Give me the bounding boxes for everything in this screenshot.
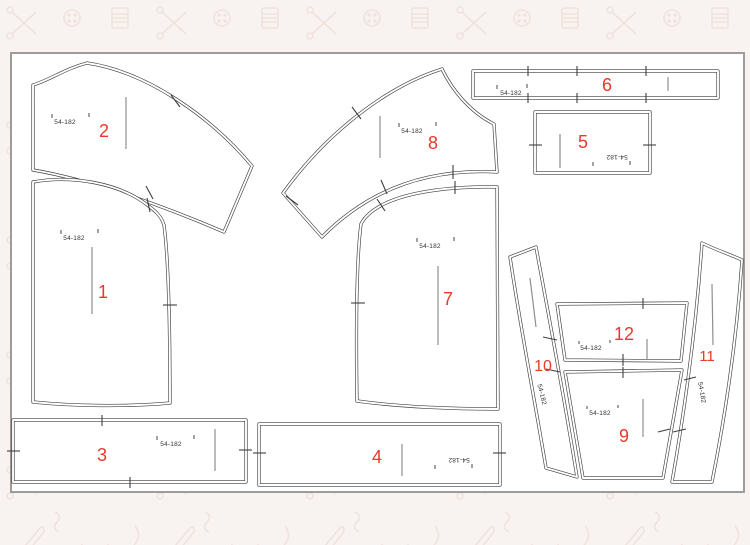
- piece-2-number: 2: [99, 121, 109, 141]
- size-label: 54-182: [448, 456, 470, 463]
- size-label: 54-182: [63, 235, 85, 242]
- size-label: 54-182: [160, 441, 182, 448]
- size-label: 54-182: [580, 345, 602, 352]
- piece-12-number: 12: [614, 324, 634, 344]
- pattern-piece-4: 54-182 4: [253, 424, 506, 485]
- pattern-layout-page: 54-182 2 54-182 1 54: [0, 0, 750, 545]
- piece-3-number: 3: [97, 445, 107, 465]
- size-label: 54-182: [606, 153, 628, 160]
- piece-11-number: 11: [699, 348, 715, 365]
- piece-4-number: 4: [372, 447, 382, 467]
- piece-6-number: 6: [602, 75, 612, 95]
- size-label: 54-182: [500, 90, 522, 97]
- pattern-piece-7: 54-182 7: [351, 181, 498, 409]
- piece-7-number: 7: [443, 289, 453, 309]
- size-label: 54-182: [589, 410, 611, 417]
- pattern-piece-6: 54-182 6: [473, 66, 718, 103]
- pattern-piece-3: 54-182 3: [7, 415, 252, 488]
- piece-8-number: 8: [428, 133, 438, 153]
- piece-1-number: 1: [98, 282, 108, 302]
- size-label: 54-182: [419, 243, 441, 250]
- pattern-layout-canvas: 54-182 2 54-182 1 54: [0, 0, 750, 545]
- size-label: 54-182: [54, 119, 76, 126]
- piece-10-number: 10: [534, 358, 552, 375]
- pattern-piece-5: 54-182 5: [529, 112, 656, 173]
- size-label: 54-182: [401, 128, 423, 135]
- pattern-piece-1: 54-182 1: [33, 180, 177, 406]
- pattern-piece-12: 54-182 12: [557, 298, 687, 366]
- piece-9-number: 9: [619, 426, 629, 446]
- pattern-piece-9: 54-182 9: [565, 367, 682, 478]
- piece-5-number: 5: [578, 132, 588, 152]
